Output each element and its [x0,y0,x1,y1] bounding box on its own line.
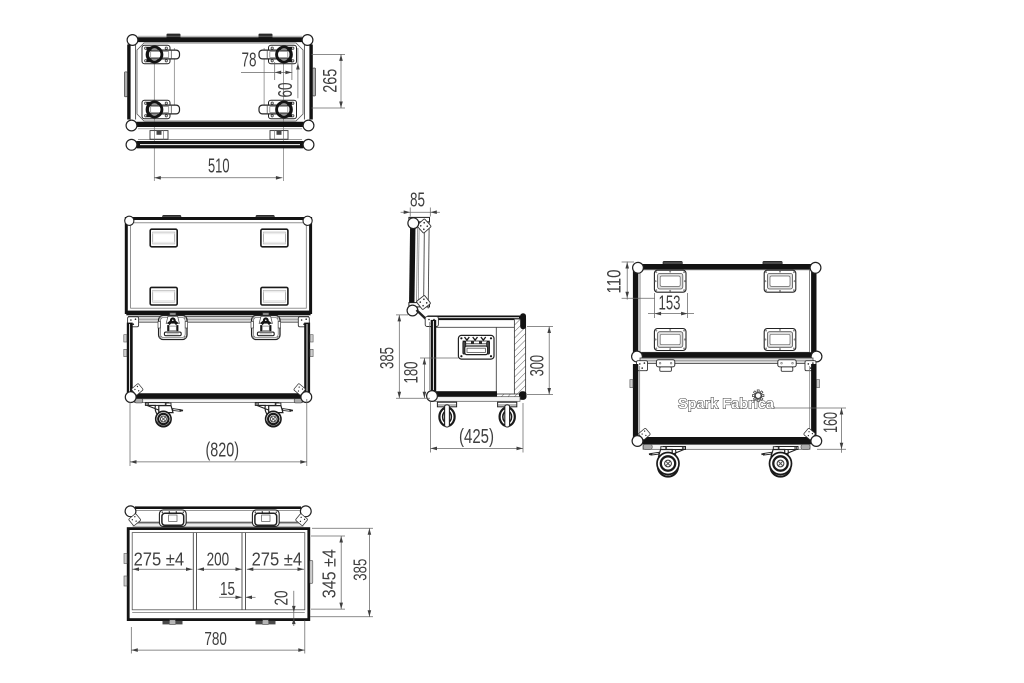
svg-text:345 ±4: 345 ±4 [319,549,340,598]
svg-text:275 ±4: 275 ±4 [134,549,185,570]
svg-text:385: 385 [378,347,399,369]
svg-text:78: 78 [242,50,257,72]
svg-text:(425): (425) [459,426,494,448]
svg-text:160: 160 [821,412,842,433]
svg-text:110: 110 [605,270,626,294]
svg-text:300: 300 [528,355,549,377]
svg-text:385: 385 [349,559,370,581]
svg-text:85: 85 [410,190,425,212]
svg-text:510: 510 [208,156,230,178]
svg-text:780: 780 [204,628,227,649]
svg-text:(820): (820) [206,440,240,462]
svg-text:200: 200 [207,549,230,570]
svg-text:15: 15 [220,578,235,599]
svg-text:180: 180 [402,362,423,384]
svg-text:60: 60 [275,83,297,98]
svg-text:153: 153 [659,293,681,315]
svg-text:20: 20 [271,591,292,606]
svg-text:275 ±4: 275 ±4 [252,549,303,570]
svg-text:265: 265 [321,69,342,93]
